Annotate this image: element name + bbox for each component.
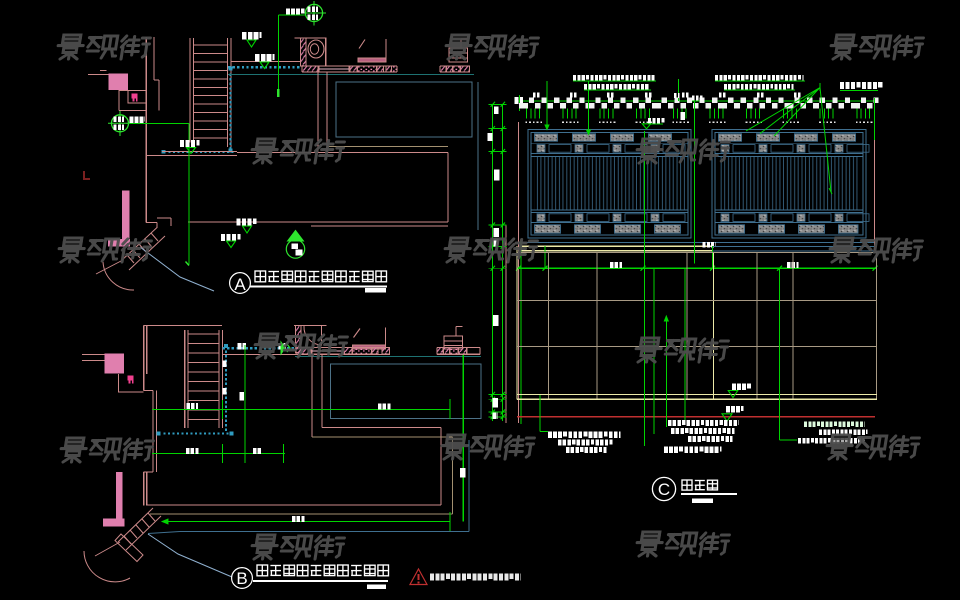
svg-text:B: B (236, 569, 247, 588)
svg-text:A: A (234, 275, 246, 294)
svg-text:C: C (658, 480, 670, 499)
